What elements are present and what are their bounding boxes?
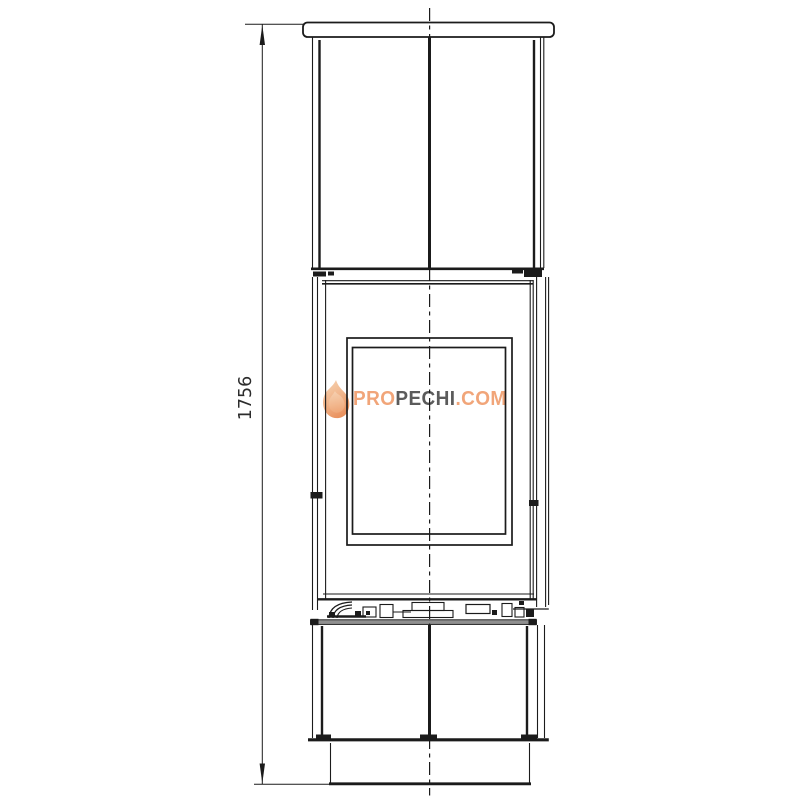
upper-transition xyxy=(311,269,544,277)
technical-drawing-canvas: PROPECHI.COM xyxy=(0,0,801,801)
dimension-value-label: 1756 xyxy=(236,376,256,421)
plinth-base xyxy=(254,743,531,784)
lower-panels xyxy=(308,625,549,741)
stove-front-elevation-drawing: 1756 xyxy=(0,0,801,801)
dimension-arrow-up xyxy=(260,25,265,45)
top-cap xyxy=(303,23,554,38)
right-door-clip xyxy=(529,500,539,506)
height-dimension: 1756 xyxy=(236,24,304,784)
separator-band xyxy=(311,619,537,625)
firebox-casing xyxy=(313,277,549,610)
firebox-door xyxy=(311,277,539,607)
upper-panels xyxy=(313,37,544,268)
left-door-clip xyxy=(311,492,323,499)
door-mechanism xyxy=(327,601,534,618)
dimension-arrow-down xyxy=(260,764,265,784)
